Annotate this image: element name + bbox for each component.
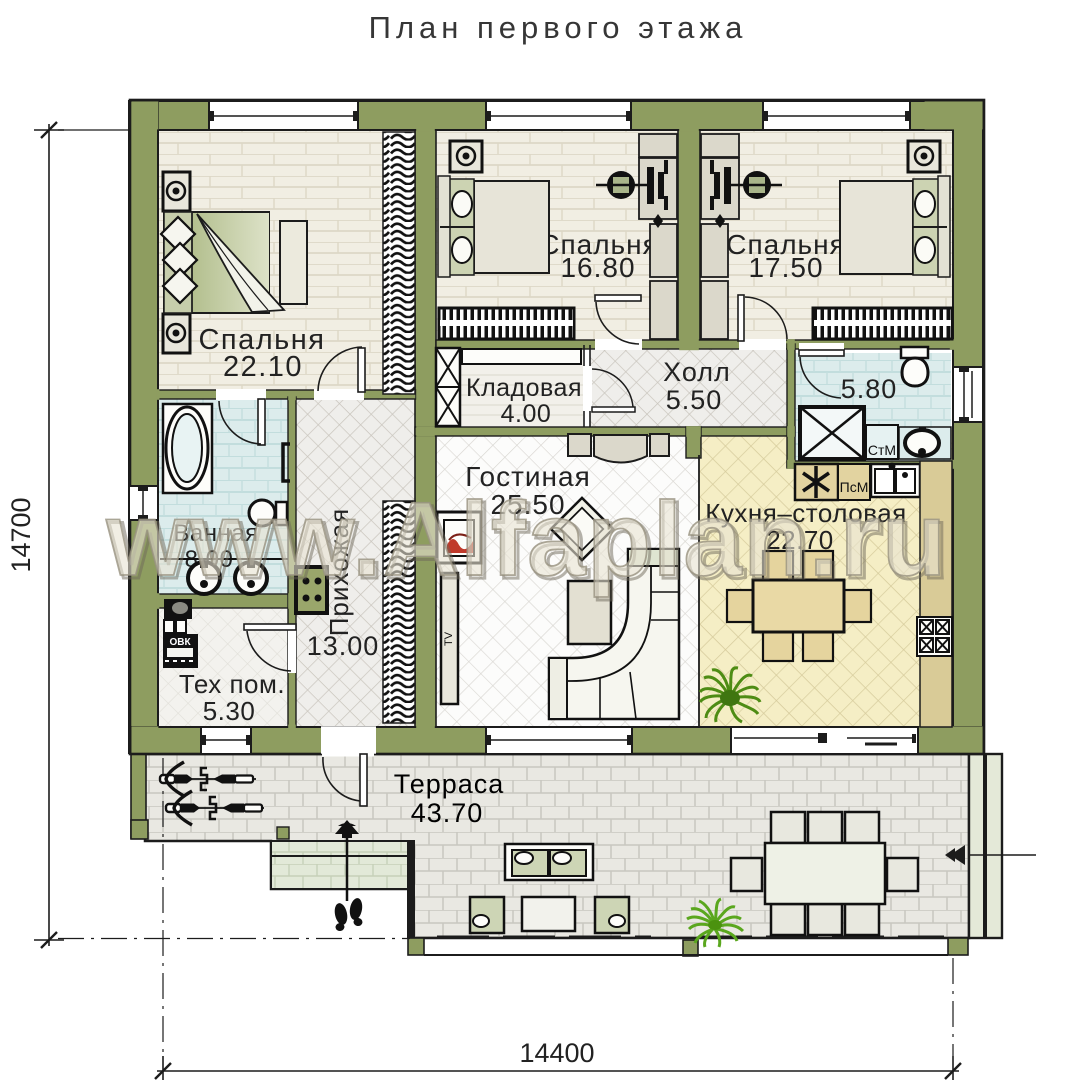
svg-text:14400: 14400 — [519, 1038, 594, 1068]
svg-text:План первого этажа: План первого этажа — [369, 10, 748, 45]
svg-text:4.00: 4.00 — [501, 400, 552, 428]
svg-text:5.30: 5.30 — [203, 696, 256, 726]
svg-text:43.70: 43.70 — [411, 798, 484, 828]
svg-text:5.80: 5.80 — [841, 374, 898, 404]
svg-text:ОВК: ОВК — [169, 637, 191, 648]
svg-text:Тех пом.: Тех пом. — [179, 669, 285, 699]
svg-text:Кладовая: Кладовая — [466, 374, 582, 402]
svg-text:16.80: 16.80 — [560, 252, 635, 283]
svg-text:22.10: 22.10 — [223, 351, 303, 383]
svg-text:www.Alfaplan.ru: www.Alfaplan.ru — [105, 481, 947, 598]
svg-text:TV: TV — [443, 631, 455, 646]
svg-text:13.00: 13.00 — [307, 631, 380, 661]
svg-text:Холл: Холл — [663, 357, 731, 387]
svg-text:СтМ: СтМ — [868, 442, 896, 458]
svg-text:5.50: 5.50 — [666, 385, 723, 415]
svg-text:14700: 14700 — [6, 497, 36, 572]
svg-text:Терраса: Терраса — [394, 769, 505, 799]
svg-text:17.50: 17.50 — [748, 252, 823, 283]
